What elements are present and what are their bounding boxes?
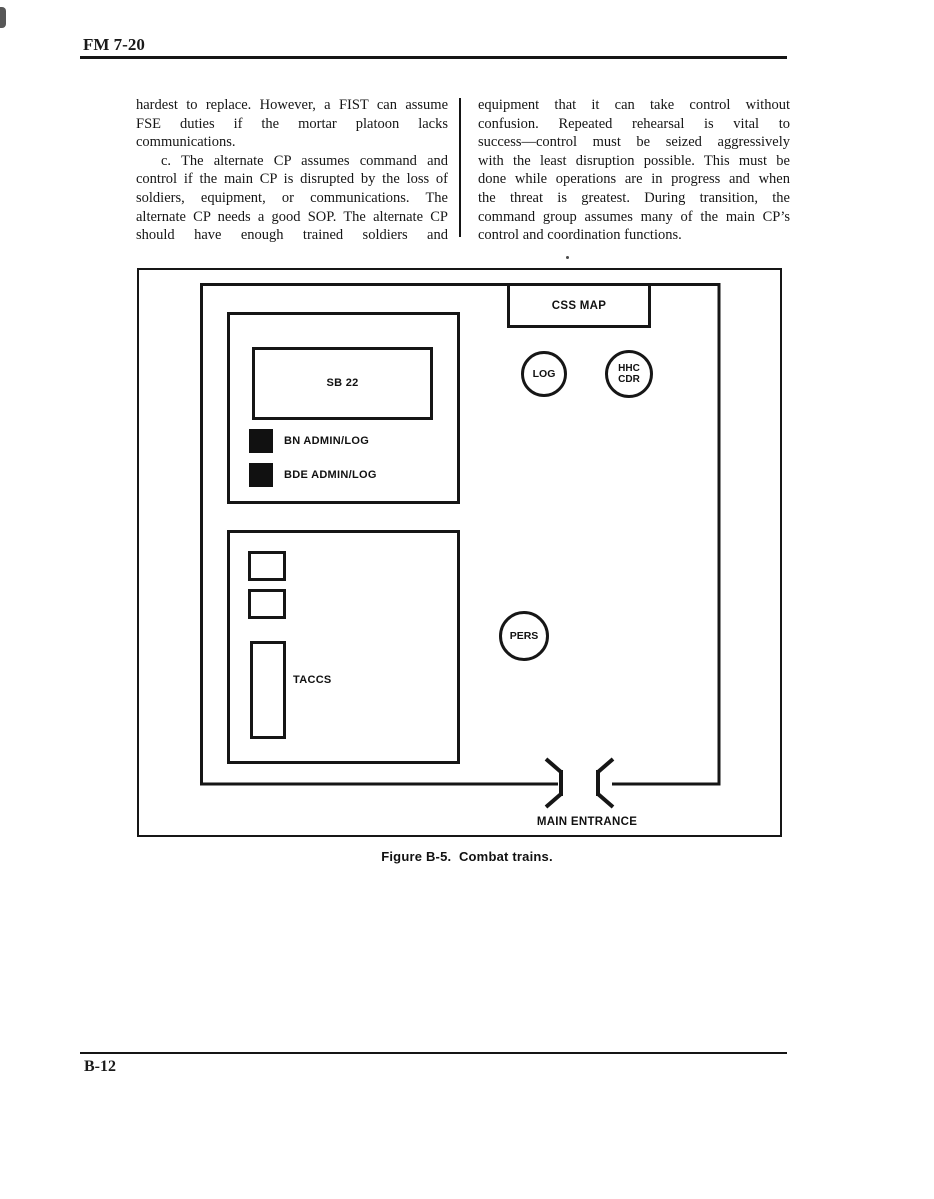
text-line: alternate CP needs a good SOP. The alter… xyxy=(136,208,448,227)
header-title: FM 7-20 xyxy=(83,35,145,55)
text-line: control and coordination functions. xyxy=(478,226,790,245)
hhc-label: HHC xyxy=(618,363,640,374)
text-line: confusion. Repeated rehearsal is vital t… xyxy=(478,115,790,134)
text-line: command group assumes many of the main C… xyxy=(478,208,790,227)
text-line: equipment that it can take control witho… xyxy=(478,96,790,115)
text-line: soldiers, equipment, or communications. … xyxy=(136,189,448,208)
bn-admin-log-square xyxy=(249,429,273,453)
taccs-box xyxy=(250,641,286,739)
cdr-label: CDR xyxy=(618,374,640,385)
text-line: should have enough trained soldiers and xyxy=(136,226,448,245)
left-text-column: hardest to replace. However, a FIST can … xyxy=(136,96,448,245)
scan-artifact-dot xyxy=(566,256,569,259)
sb22-label: SB 22 xyxy=(255,377,430,389)
text-line: c. The alternate CP assumes command and xyxy=(136,152,448,171)
right-text-column: equipment that it can take control witho… xyxy=(478,96,790,245)
text-line: FSE duties if the mortar platoon lacks xyxy=(136,115,448,134)
text-line: control if the main CP is disrupted by t… xyxy=(136,170,448,189)
log-label: LOG xyxy=(533,368,556,380)
entrance-chevron-right xyxy=(598,759,613,807)
log-circle: LOG xyxy=(521,351,567,397)
small-box-1 xyxy=(248,551,286,581)
figure-frame: CSS MAP SB 22 BN ADMIN/LOG BDE ADMIN/LOG… xyxy=(137,268,782,837)
pers-label: PERS xyxy=(510,630,539,642)
page-number: B-12 xyxy=(84,1058,116,1076)
pers-circle: PERS xyxy=(499,611,549,661)
figure-caption: Figure B-5. Combat trains. xyxy=(0,849,934,864)
text-line: communications. xyxy=(136,133,448,152)
taccs-label: TACCS xyxy=(293,674,332,686)
bn-admin-log-label: BN ADMIN/LOG xyxy=(284,435,369,447)
css-map-box: CSS MAP xyxy=(507,283,651,328)
text-line: done while operations are in progress an… xyxy=(478,170,790,189)
hhc-cdr-circle: HHC CDR xyxy=(605,350,653,398)
document-page: FM 7-20 hardest to replace. However, a F… xyxy=(0,0,934,1199)
bde-admin-log-square xyxy=(249,463,273,487)
footer-rule xyxy=(80,1052,787,1054)
text-line: hardest to replace. However, a FIST can … xyxy=(136,96,448,115)
small-box-2 xyxy=(248,589,286,619)
css-map-label: CSS MAP xyxy=(510,300,648,312)
header-rule xyxy=(80,56,787,59)
sb22-box: SB 22 xyxy=(252,347,433,420)
main-entrance-label: MAIN ENTRANCE xyxy=(519,816,655,828)
column-divider-rule xyxy=(459,98,461,237)
bde-admin-log-label: BDE ADMIN/LOG xyxy=(284,469,377,481)
text-line: with the least disruption possible. This… xyxy=(478,152,790,171)
text-line: success—control must be seized aggressiv… xyxy=(478,133,790,152)
text-line: the threat is greatest. During transitio… xyxy=(478,189,790,208)
scan-artifact-mark xyxy=(0,7,6,28)
